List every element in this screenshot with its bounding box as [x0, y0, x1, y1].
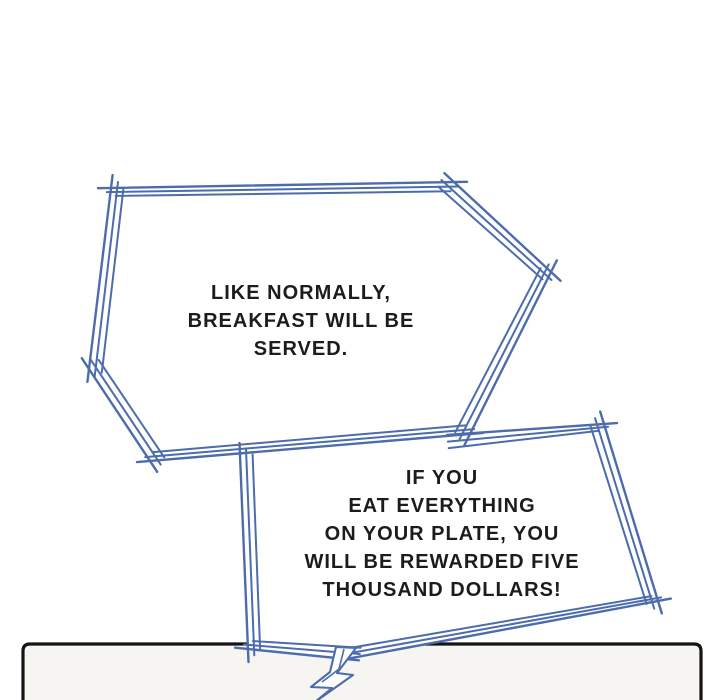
speech-line: IF YOU — [292, 464, 592, 492]
speech-line: SERVED. — [171, 335, 431, 363]
speech-line: THOUSAND DOLLARS! — [292, 576, 592, 604]
speech-line: WILL BE REWARDED FIVE — [292, 548, 592, 576]
speech-line: EAT EVERYTHING — [292, 492, 592, 520]
speech-line: LIKE NORMALLY, — [171, 279, 431, 307]
speech-line: ON YOUR PLATE, YOU — [292, 520, 592, 548]
speech-bubble-1-text: LIKE NORMALLY, BREAKFAST WILL BE SERVED. — [171, 279, 431, 363]
speech-line: BREAKFAST WILL BE — [171, 307, 431, 335]
comic-page: LIKE NORMALLY, BREAKFAST WILL BE SERVED.… — [0, 0, 720, 700]
speech-bubble-2-text: IF YOU EAT EVERYTHING ON YOUR PLATE, YOU… — [292, 464, 592, 604]
